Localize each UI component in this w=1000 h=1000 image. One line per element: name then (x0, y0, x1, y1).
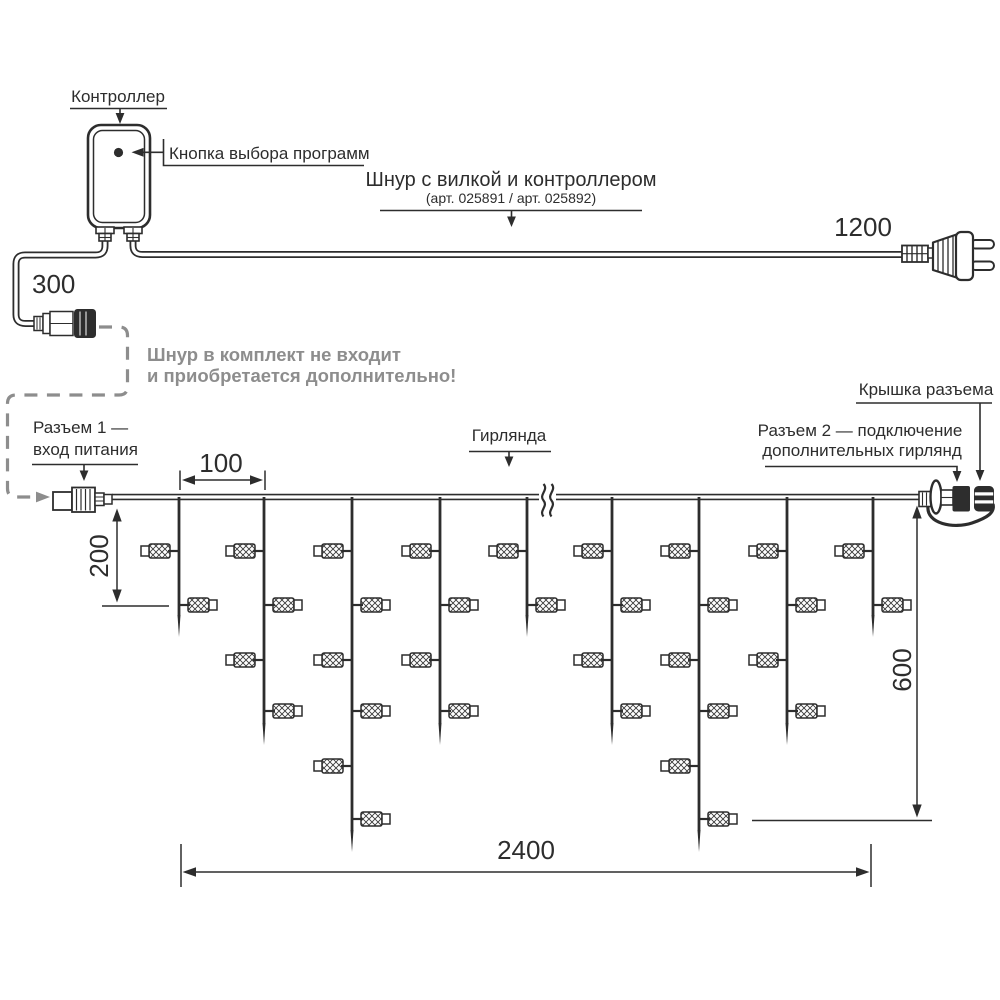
lamp-icon (314, 759, 352, 773)
garland-wiring-diagram: Контроллер Кнопка выбора программ Шнур с… (0, 0, 1000, 1000)
note-line2: и приобретается дополнительно! (147, 365, 456, 386)
lamp-icon (226, 544, 264, 558)
dim-300: 300 (32, 269, 75, 299)
garland-drops (141, 497, 911, 852)
connector1-label-line1: Разъем 1 — (33, 418, 128, 437)
garland-drop (574, 497, 650, 745)
lamp-icon (352, 598, 390, 612)
cord-title: Шнур с вилкой и контроллером (366, 169, 657, 191)
lamp-icon (612, 704, 650, 718)
garland-drop (402, 497, 478, 745)
lamp-icon (661, 653, 699, 667)
lamp-icon (264, 704, 302, 718)
connector2-label-line1: Разъем 2 — подключение (758, 421, 963, 440)
lamp-icon (699, 704, 737, 718)
lamp-icon (440, 598, 478, 612)
arrow-down-icon (80, 471, 89, 482)
garland-drop (661, 497, 737, 852)
lamp-icon (574, 544, 612, 558)
lamp-icon (264, 598, 302, 612)
diagram-page: Контроллер Кнопка выбора программ Шнур с… (0, 0, 1000, 1000)
plug-prong-top (971, 240, 994, 249)
arrow-down-icon (953, 471, 962, 482)
lamp-icon (749, 544, 787, 558)
garland-label: Гирлянда (472, 426, 547, 445)
connector1-callout: Разъем 1 — вход питания (32, 418, 138, 481)
program-button-callout: Кнопка выбора программ (132, 139, 370, 166)
connector2 (919, 481, 994, 526)
dimension-100: 100 (180, 448, 265, 490)
arrow-down-icon (507, 217, 516, 228)
lamp-icon (574, 653, 612, 667)
lamp-icon (527, 598, 565, 612)
cord-callout: Шнур с вилкой и контроллером (арт. 02589… (366, 169, 657, 227)
connector1 (53, 488, 112, 513)
lamp-icon (661, 544, 699, 558)
dim-1200: 1200 (834, 212, 892, 242)
lamp-icon (179, 598, 217, 612)
lamp-icon (440, 704, 478, 718)
connector1-label-line2: вход питания (33, 440, 138, 459)
cord-connector-male (34, 309, 96, 338)
lamp-icon (402, 653, 440, 667)
cable-gland-left (96, 227, 114, 241)
lamp-icon (489, 544, 527, 558)
program-button-dot (114, 148, 123, 157)
arrow-down-icon (116, 113, 125, 124)
lamp-icon (749, 653, 787, 667)
garland-callout: Гирлянда (469, 426, 551, 467)
lamp-icon (699, 598, 737, 612)
lamp-icon (226, 653, 264, 667)
garland-drop (314, 497, 390, 852)
lamp-icon (873, 598, 911, 612)
dimension-2400: 2400 (181, 835, 871, 887)
controller-label: Контроллер (71, 87, 165, 106)
garland-drop (226, 497, 302, 745)
connector-cap-part (974, 486, 994, 512)
program-button-label: Кнопка выбора программ (169, 144, 370, 163)
note-line1: Шнур в комплект не входит (147, 344, 401, 365)
lamp-icon (661, 759, 699, 773)
dim-200: 200 (84, 534, 114, 577)
connector-black-cap (74, 309, 96, 338)
arrow-right-icon (36, 492, 50, 503)
lamp-icon (787, 598, 825, 612)
dashed-connection-path (8, 327, 128, 497)
arrow-down-icon (976, 470, 985, 481)
dim-600: 600 (887, 648, 917, 691)
lamp-icon (352, 812, 390, 826)
cable-gland-right (124, 227, 142, 241)
cord-articles: (арт. 025891 / арт. 025892) (426, 190, 596, 206)
power-plug (902, 232, 994, 280)
lamp-icon (141, 544, 179, 558)
lamp-icon (835, 544, 873, 558)
dim-100: 100 (199, 448, 242, 478)
lamp-icon (699, 812, 737, 826)
lamp-icon (314, 544, 352, 558)
cap-label: Крышка разъема (859, 380, 994, 399)
connector2-callout: Разъем 2 — подключение дополнительных ги… (758, 421, 963, 482)
dim-2400: 2400 (497, 835, 555, 865)
lamp-icon (314, 653, 352, 667)
connector2-label-line2: дополнительных гирлянд (762, 441, 962, 460)
garland-drop (141, 497, 217, 637)
garland-drop (835, 497, 911, 637)
lamp-icon (352, 704, 390, 718)
lamp-icon (787, 704, 825, 718)
lamp-icon (612, 598, 650, 612)
controller-box (88, 125, 150, 228)
plug-prong-bottom (971, 262, 994, 271)
controller-callout: Контроллер (70, 87, 167, 124)
garland-drop (749, 497, 825, 745)
lamp-icon (402, 544, 440, 558)
arrow-down-icon (505, 457, 514, 468)
cord-right-1200 (133, 240, 904, 255)
break-symbol (539, 484, 556, 517)
garland-drop (489, 497, 565, 637)
